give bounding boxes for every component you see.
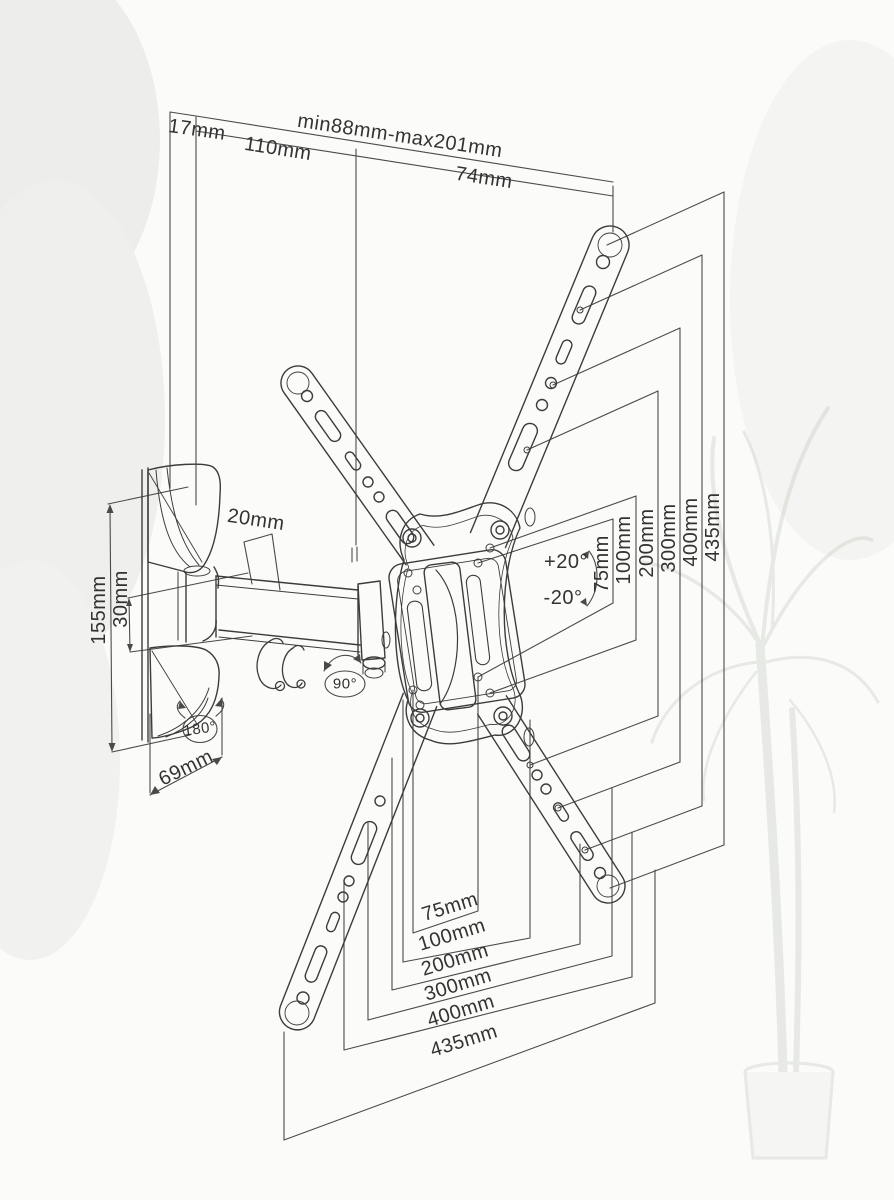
dimension-lines: [107, 112, 725, 1140]
dim-label-right-400mm: 400mm: [681, 497, 701, 566]
dim-label-155mm: 155mm: [89, 575, 109, 644]
dim-label-right-435mm: 435mm: [703, 492, 723, 561]
angle-label-180: 180°: [183, 719, 218, 738]
dim-label-30mm: 30mm: [111, 570, 131, 628]
arm-upper-left: [281, 366, 434, 565]
dim-label-right-100mm: 100mm: [614, 515, 634, 584]
dim-top-group: [170, 112, 613, 545]
cable-hooks: [257, 639, 305, 691]
vesa-plate-body: [382, 503, 535, 746]
arm-upper-right: [471, 226, 630, 548]
arm-lower-right: [478, 696, 625, 903]
angle-label-90: 90°: [333, 677, 357, 692]
screenshot-root: 17mmmin88mm-max201mm110mm74mm155mm30mm20…: [0, 0, 894, 1200]
tilt-label-plus20: +20°: [544, 552, 588, 572]
tilt-label-minus20: -20°: [544, 588, 583, 608]
dim-label-right-75mm: 75mm: [592, 535, 612, 593]
dim-label-right-200mm: 200mm: [637, 508, 657, 577]
dim-label-right-300mm: 300mm: [659, 503, 679, 572]
dim-30-group: [126, 573, 252, 652]
